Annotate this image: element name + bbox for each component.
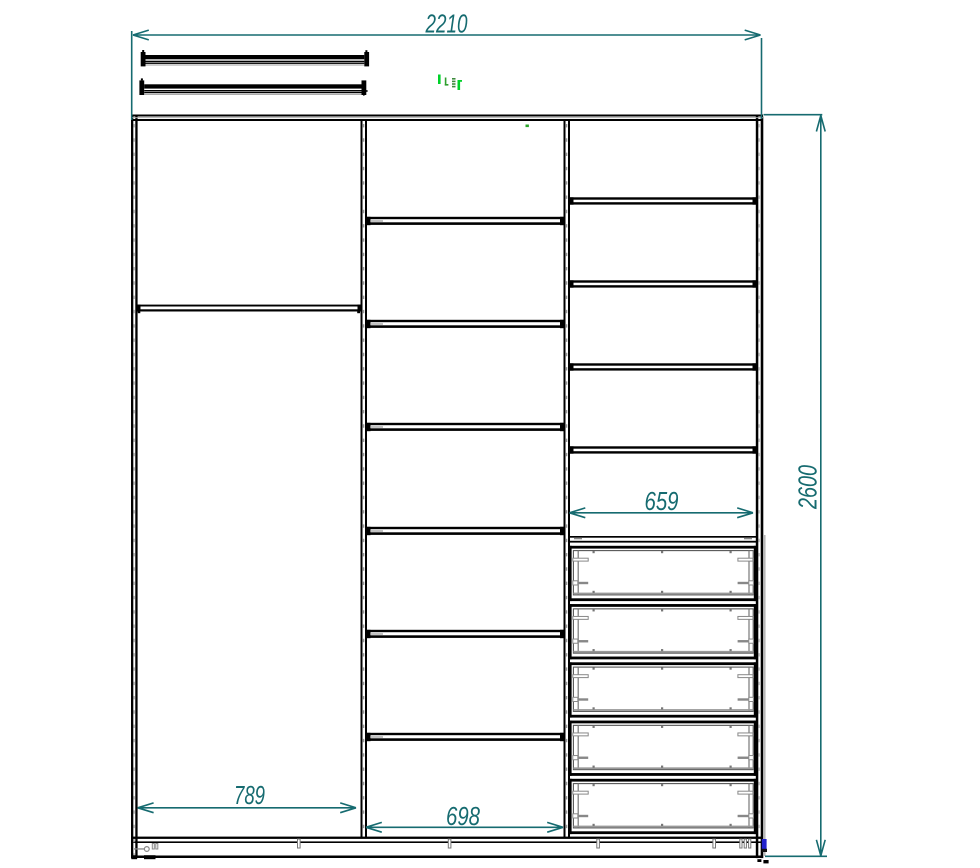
svg-text:789: 789 (234, 780, 265, 810)
svg-text:2600: 2600 (793, 465, 823, 510)
svg-text:2210: 2210 (425, 8, 468, 38)
svg-text:698: 698 (446, 801, 480, 831)
svg-text:659: 659 (645, 486, 679, 516)
